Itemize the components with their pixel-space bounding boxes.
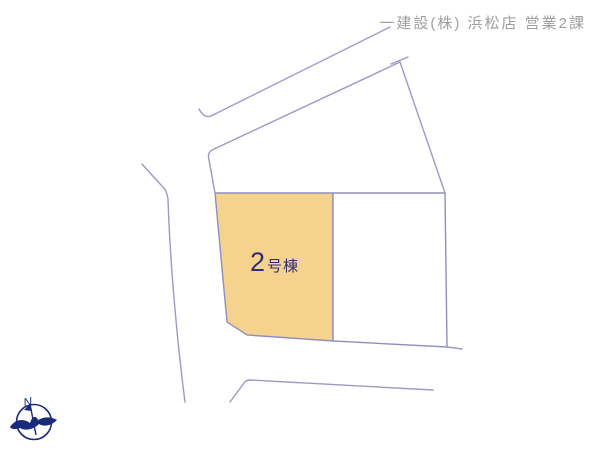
- road-line-left: [142, 164, 185, 402]
- block-bottom-extension: [447, 347, 462, 349]
- block-right-slant: [400, 62, 445, 193]
- plot-label: 2 号棟: [250, 249, 299, 276]
- road-line-to-lot: [208, 62, 400, 193]
- road-line-upper: [199, 27, 390, 117]
- company-header: 一建設(株) 浜松店 営業2課: [379, 12, 586, 33]
- plot-suffix: 号棟: [267, 255, 299, 276]
- site-plan-drawing: N: [0, 0, 600, 450]
- adjacent-lot-polygon: [333, 193, 447, 347]
- plot-number: 2: [250, 249, 265, 276]
- site-plan: N 一建設(株) 浜松店 営業2課 2 号棟: [0, 0, 600, 450]
- compass: N: [10, 394, 57, 439]
- compass-north-label: N: [22, 394, 34, 410]
- road-line-lower: [230, 380, 433, 402]
